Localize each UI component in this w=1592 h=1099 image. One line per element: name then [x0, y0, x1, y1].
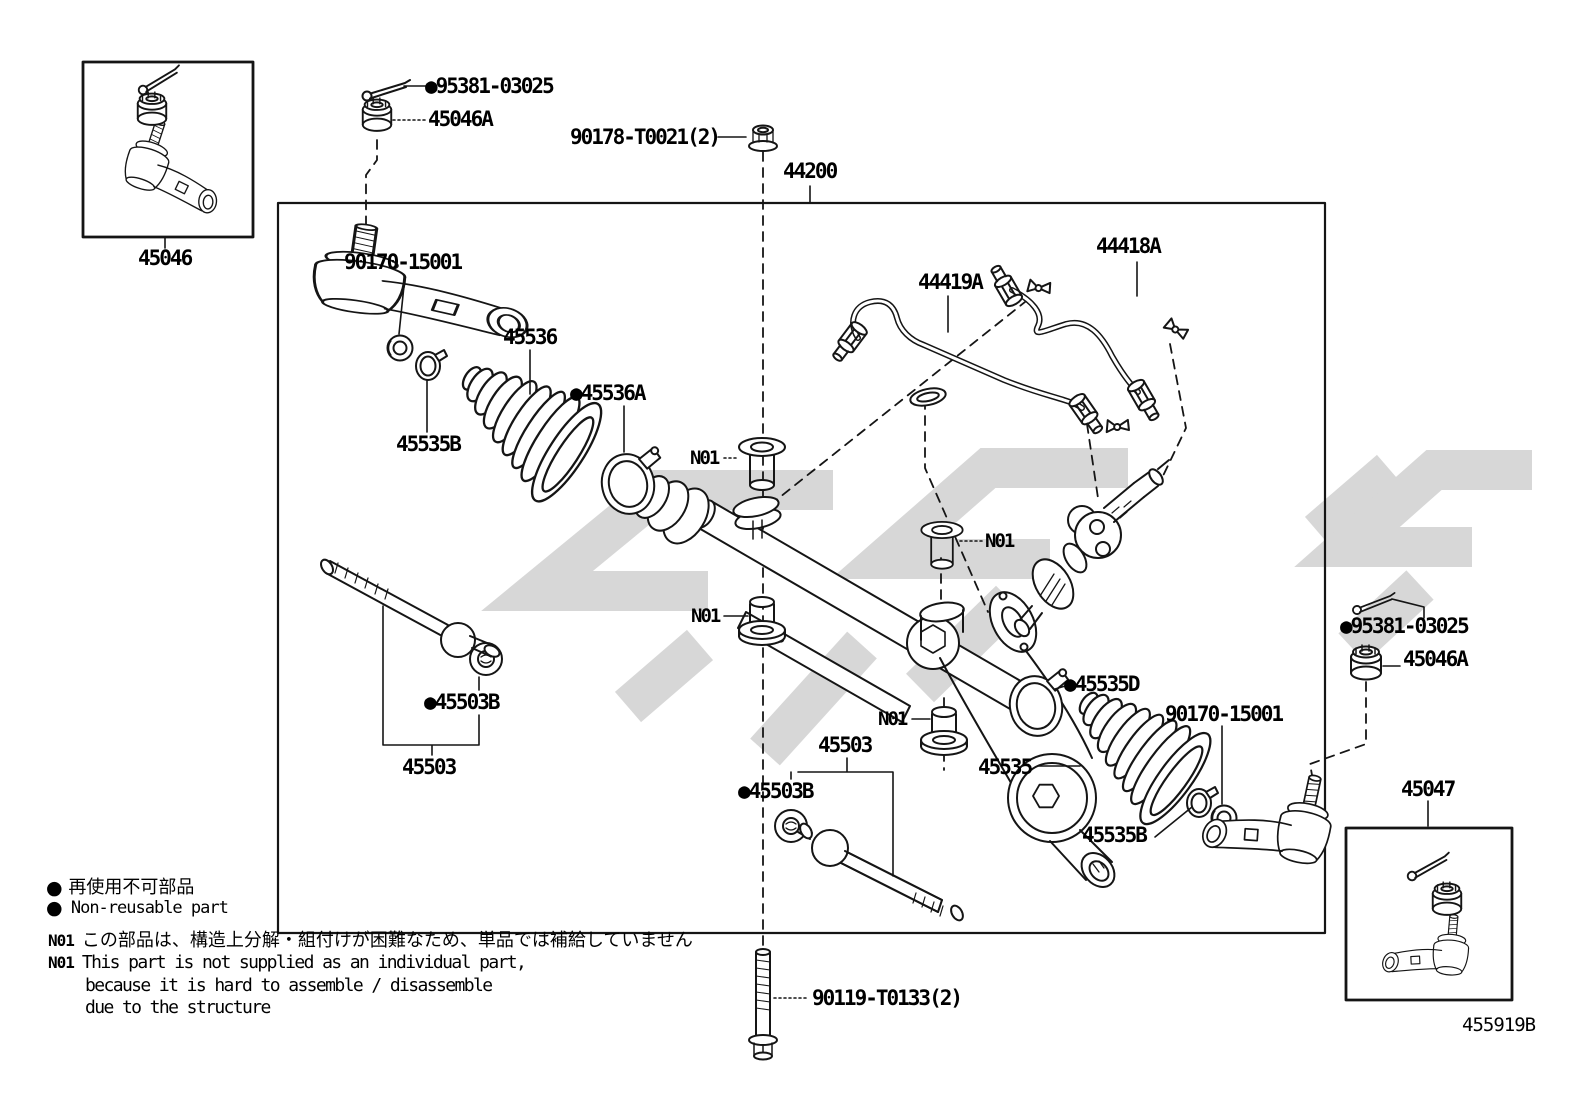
footnote-jp-row: N01この部品は、構造上分解・組付けが困難なため、単品では補給していません [48, 926, 693, 952]
tie-rod-end-left-drawing [309, 218, 543, 342]
boot-45536-drawing [429, 335, 612, 510]
part-label-mount-bolt: 90119-T0133(2) [812, 988, 961, 1009]
tie-rod-end-45046-drawing [118, 115, 238, 218]
part-label-tube-lower: 44419A [918, 272, 982, 293]
part-label-tie-rod-end-rh: 45047 [1401, 779, 1454, 800]
cotter-pin-95381-left-drawing [363, 80, 411, 101]
part-label-n01-top: N01 [690, 449, 718, 468]
part-label-tie-rod-end-lh: 45046 [138, 248, 191, 269]
non-reusable-bullet-icon: ● [46, 897, 62, 919]
diagram-code: 455919B [1462, 1014, 1535, 1036]
footnote-en-row-1: N01This part is not supplied as an indiv… [48, 952, 525, 973]
castle-nut-45046A-right-drawing [1351, 645, 1381, 680]
non-reusable-bullet-icon: ● [46, 877, 63, 899]
inset-box-45047 [1346, 828, 1512, 1000]
footnote-en-line1: This part is not supplied as an individu… [82, 952, 525, 973]
part-label-clip-left: 45535B [396, 434, 460, 455]
legend-nonreusable-en: ● Non-reusable part [46, 897, 228, 919]
flange-nut-90178-drawing [749, 126, 777, 152]
part-label-collar-left: 90170-15001 [344, 252, 461, 273]
part-label-rack-end-left: 45503 [402, 757, 455, 778]
legend-nonreusable-en-text: Non-reusable part [71, 898, 228, 918]
tube-fitting-icon [1126, 378, 1163, 424]
part-label-tube-upper: 44418A [1096, 236, 1160, 257]
cotter-pin-box-right-drawing [1405, 853, 1453, 881]
part-label-boot-left: 45536 [503, 327, 556, 348]
rack-end-45503-bottom-drawing [798, 822, 966, 923]
part-label-collar-right: 90170-15001 [1165, 704, 1282, 725]
footnote-id: N01 [48, 931, 74, 950]
part-label-boot-clamp-left: ●45536A [570, 383, 645, 404]
part-label-boot-right: 45535 [978, 757, 1031, 778]
tube-clip-icon [1027, 278, 1052, 297]
legend-nonreusable-jp: ● 再使用不可部品 [46, 873, 194, 899]
footnote-en-line3: due to the structure [85, 997, 270, 1018]
part-label-n01-lower-left: N01 [691, 607, 719, 626]
castle-nut-box-right-drawing [1433, 882, 1462, 915]
footnote-id: N01 [48, 953, 74, 972]
part-label-castle-nut-right: 45046A [1403, 649, 1467, 670]
parts-diagram-page: ●95381-03025 45046A 90178-T0021(2) 44200… [0, 0, 1592, 1099]
rack-end-45503-left-drawing [319, 558, 502, 660]
part-label-clip-right: 45535B [1082, 825, 1146, 846]
tube-clip-icon [1164, 317, 1190, 342]
mount-bolt-90119-drawing [749, 949, 777, 1060]
clip-45535B-left-drawing [416, 350, 447, 380]
collar-90170-left-drawing [388, 336, 413, 361]
part-label-boot-clamp-right: ●45535D [1064, 674, 1139, 695]
tube-fitting-icon [829, 320, 869, 365]
cotter-pin-box-left-drawing [135, 65, 183, 95]
part-label-cotter-pin-left: ●95381-03025 [425, 76, 553, 97]
castle-nut-box-left-drawing [138, 92, 167, 125]
tube-fitting-icon [987, 263, 1024, 309]
part-label-gear-assembly: 44200 [783, 161, 836, 182]
part-label-cotter-pin-right: ●95381-03025 [1340, 616, 1468, 637]
part-label-washer-bottom: ●45503B [738, 781, 813, 802]
tube-clip-icon [1107, 418, 1130, 434]
castle-nut-45046A-left-drawing [363, 98, 392, 131]
footnote-jp-text: この部品は、構造上分解・組付けが困難なため、単品では補給していません [82, 930, 693, 951]
footnote-en-line2: because it is hard to assemble / disasse… [85, 975, 491, 996]
tie-rod-end-45047-drawing [1380, 909, 1472, 980]
inset-box-45046 [83, 62, 253, 237]
pressure-tubes-drawing [853, 290, 1138, 408]
leader-lines [165, 86, 1428, 998]
part-label-n01-bottom: N01 [878, 710, 906, 729]
part-label-n01-right: N01 [985, 532, 1013, 551]
bushing-n01-bottom-drawing [921, 707, 967, 755]
part-label-rack-mount-nut: 90178-T0021(2) [570, 127, 719, 148]
part-label-washer-left: ●45503B [424, 692, 499, 713]
legend-nonreusable-jp-text: 再使用不可部品 [68, 877, 194, 898]
part-label-castle-nut-left: 45046A [428, 109, 492, 130]
part-label-rack-end-bottom: 45503 [818, 735, 871, 756]
